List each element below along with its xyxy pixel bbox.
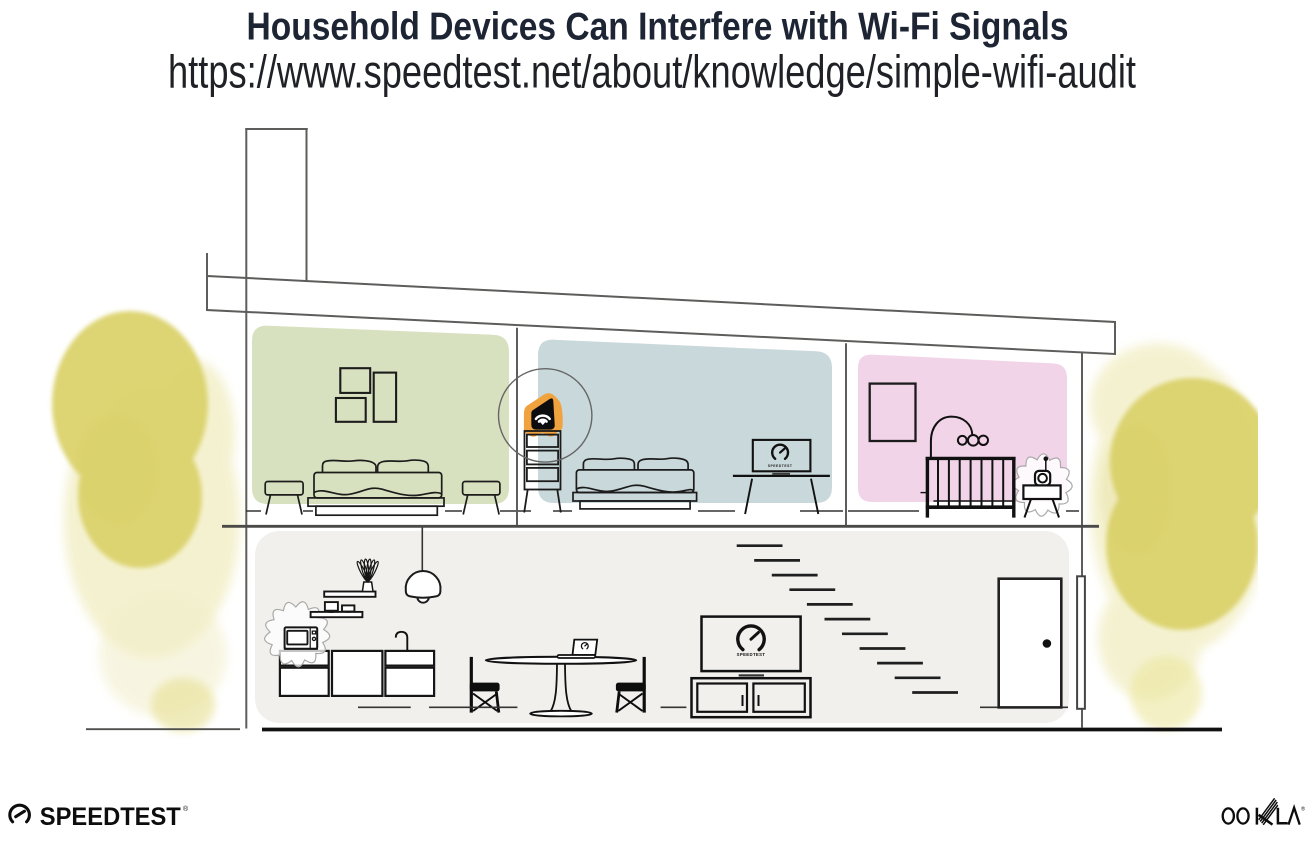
- svg-text:SPEEDTEST: SPEEDTEST: [768, 464, 793, 468]
- svg-text:SPEEDTEST: SPEEDTEST: [737, 652, 766, 657]
- svg-text:SPEEDTEST: SPEEDTEST: [40, 803, 181, 831]
- svg-text:https://www.speedtest.net/abou: https://www.speedtest.net/about/knowledg…: [168, 46, 1136, 98]
- svg-text:®: ®: [1301, 806, 1305, 813]
- svg-text:®: ®: [183, 805, 189, 813]
- svg-text:Household Devices Can Interfer: Household Devices Can Interfere with Wi-…: [247, 6, 1069, 49]
